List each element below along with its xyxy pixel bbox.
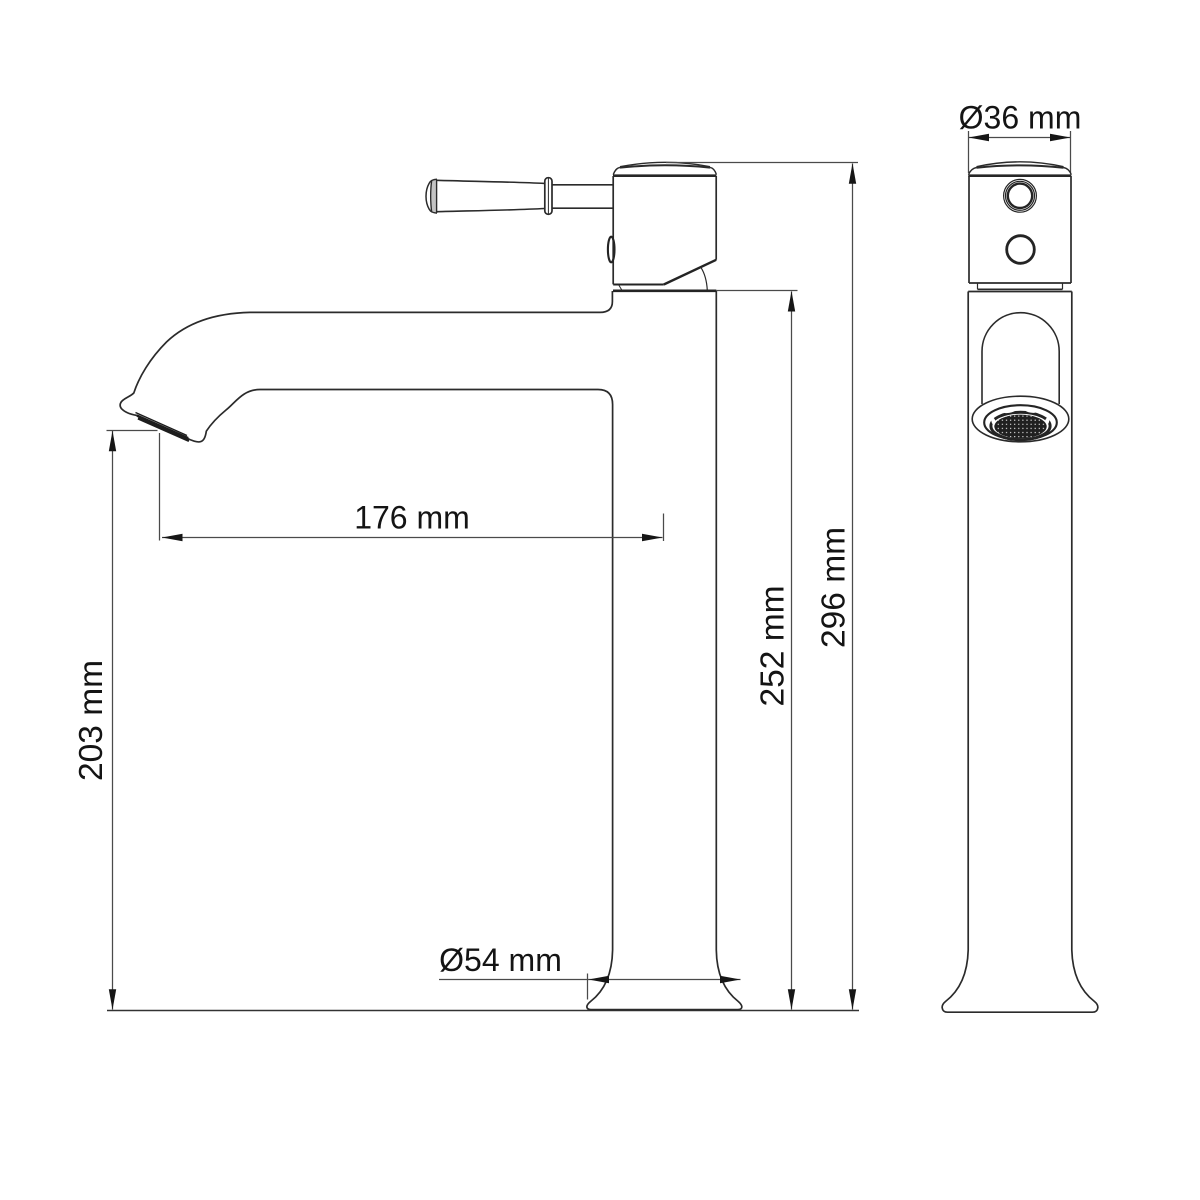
- svg-text:203 mm: 203 mm: [73, 660, 110, 781]
- svg-text:Ø54 mm: Ø54 mm: [439, 942, 562, 978]
- svg-text:176 mm: 176 mm: [354, 500, 470, 536]
- svg-text:Ø36 mm: Ø36 mm: [959, 100, 1082, 136]
- svg-text:296 mm: 296 mm: [816, 527, 853, 648]
- svg-text:252 mm: 252 mm: [755, 585, 792, 706]
